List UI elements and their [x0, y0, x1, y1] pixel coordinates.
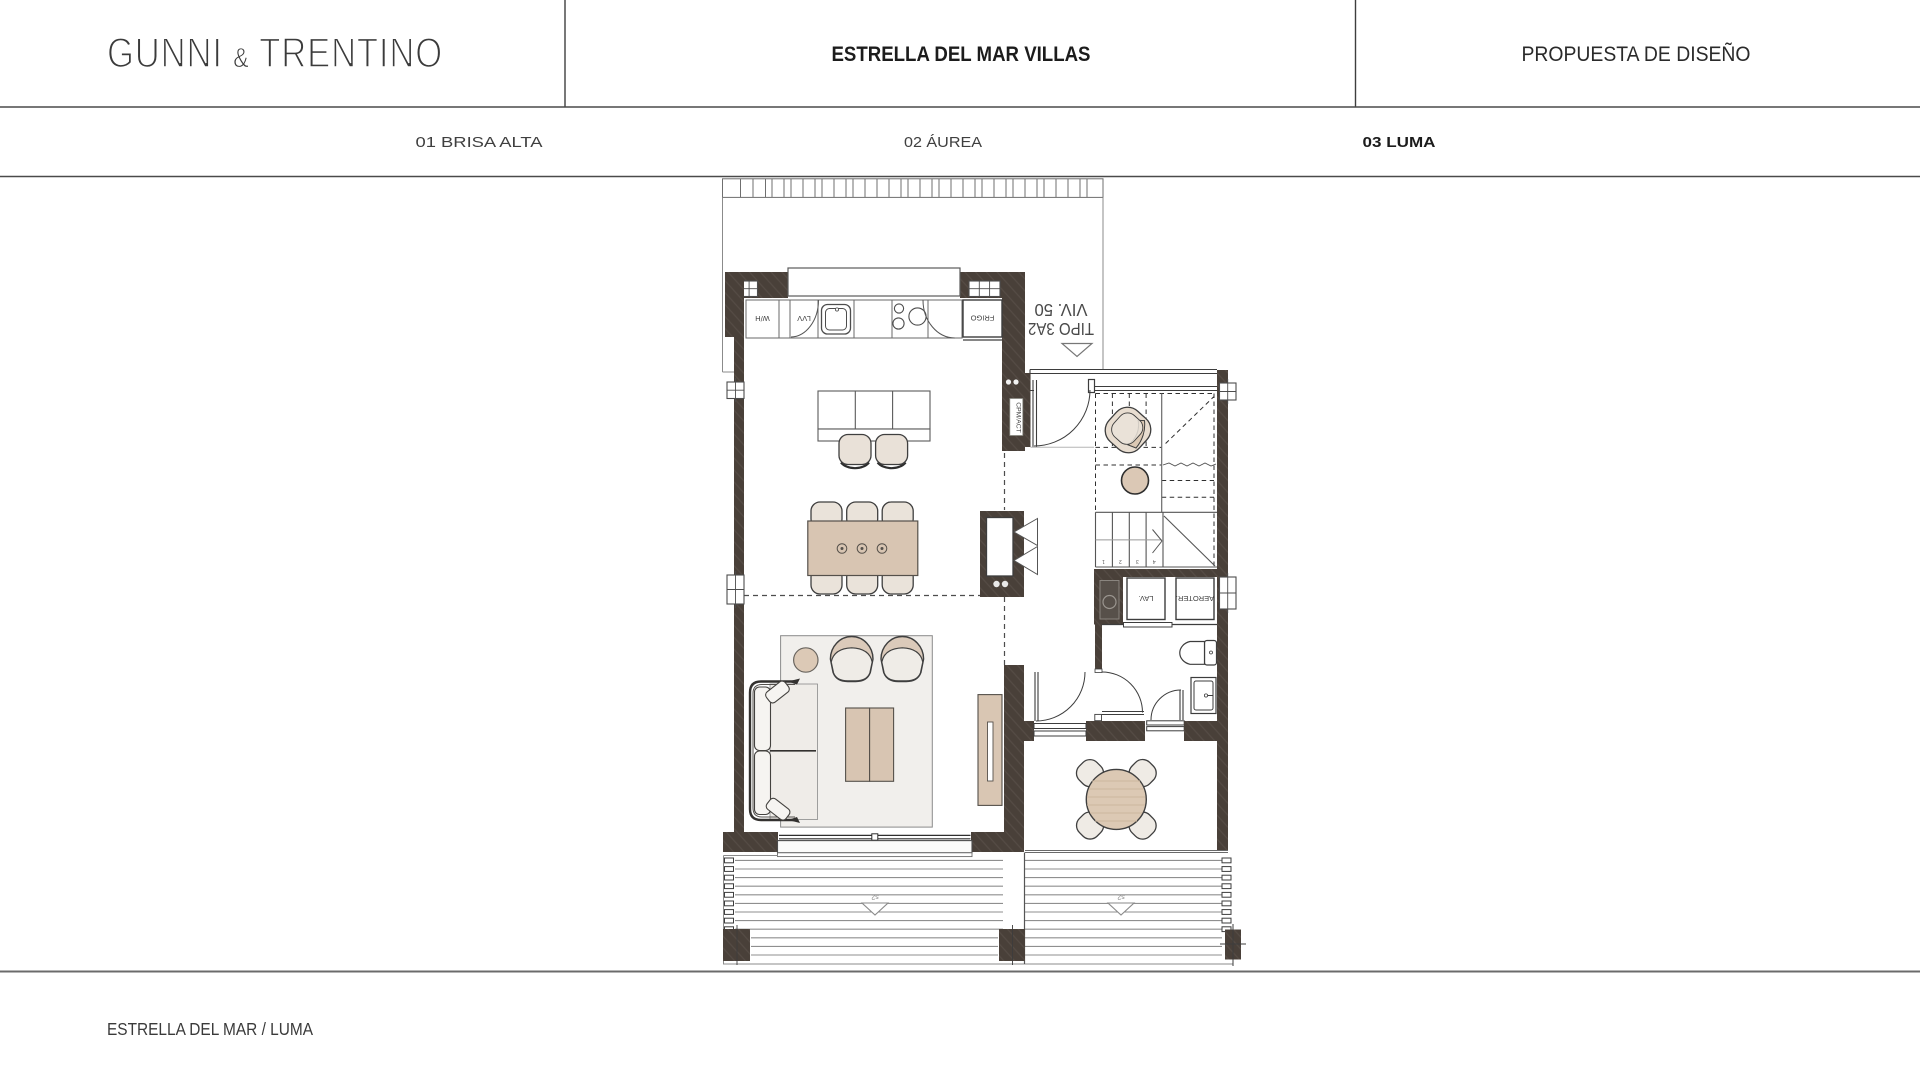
svg-text:03 LUMA: 03 LUMA: [1363, 134, 1436, 151]
svg-text:s2: s2: [1117, 893, 1125, 900]
svg-text:LAV.: LAV.: [1138, 594, 1153, 603]
svg-text:1: 1: [1102, 558, 1105, 564]
svg-text:2: 2: [1119, 558, 1122, 564]
svg-text:TIPO 3A2: TIPO 3A2: [1028, 319, 1094, 339]
svg-text:3: 3: [1136, 558, 1139, 564]
svg-text:4: 4: [1153, 558, 1156, 564]
svg-text:VIV. 50: VIV. 50: [1034, 300, 1087, 320]
svg-text:LVV: LVV: [797, 314, 811, 323]
svg-text:PROPUESTA DE DISEÑO: PROPUESTA DE DISEÑO: [1522, 42, 1751, 66]
svg-text:ESTRELLA DEL MAR VILLAS: ESTRELLA DEL MAR VILLAS: [832, 42, 1091, 66]
svg-text:CPM/ACT: CPM/ACT: [1014, 402, 1021, 433]
svg-text:AEROTER.: AEROTER.: [1176, 594, 1214, 603]
svg-text:02 ÁUREA: 02 ÁUREA: [904, 134, 982, 151]
svg-text:GUNNI & TRENTINO: GUNNI & TRENTINO: [107, 29, 443, 76]
svg-text:01 BRISA ALTA: 01 BRISA ALTA: [416, 134, 543, 151]
svg-text:FRIGO: FRIGO: [970, 314, 994, 323]
svg-text:W/H: W/H: [755, 314, 770, 323]
svg-text:s2: s2: [871, 893, 879, 900]
svg-text:ESTRELLA DEL MAR / LUMA: ESTRELLA DEL MAR / LUMA: [107, 1019, 313, 1039]
